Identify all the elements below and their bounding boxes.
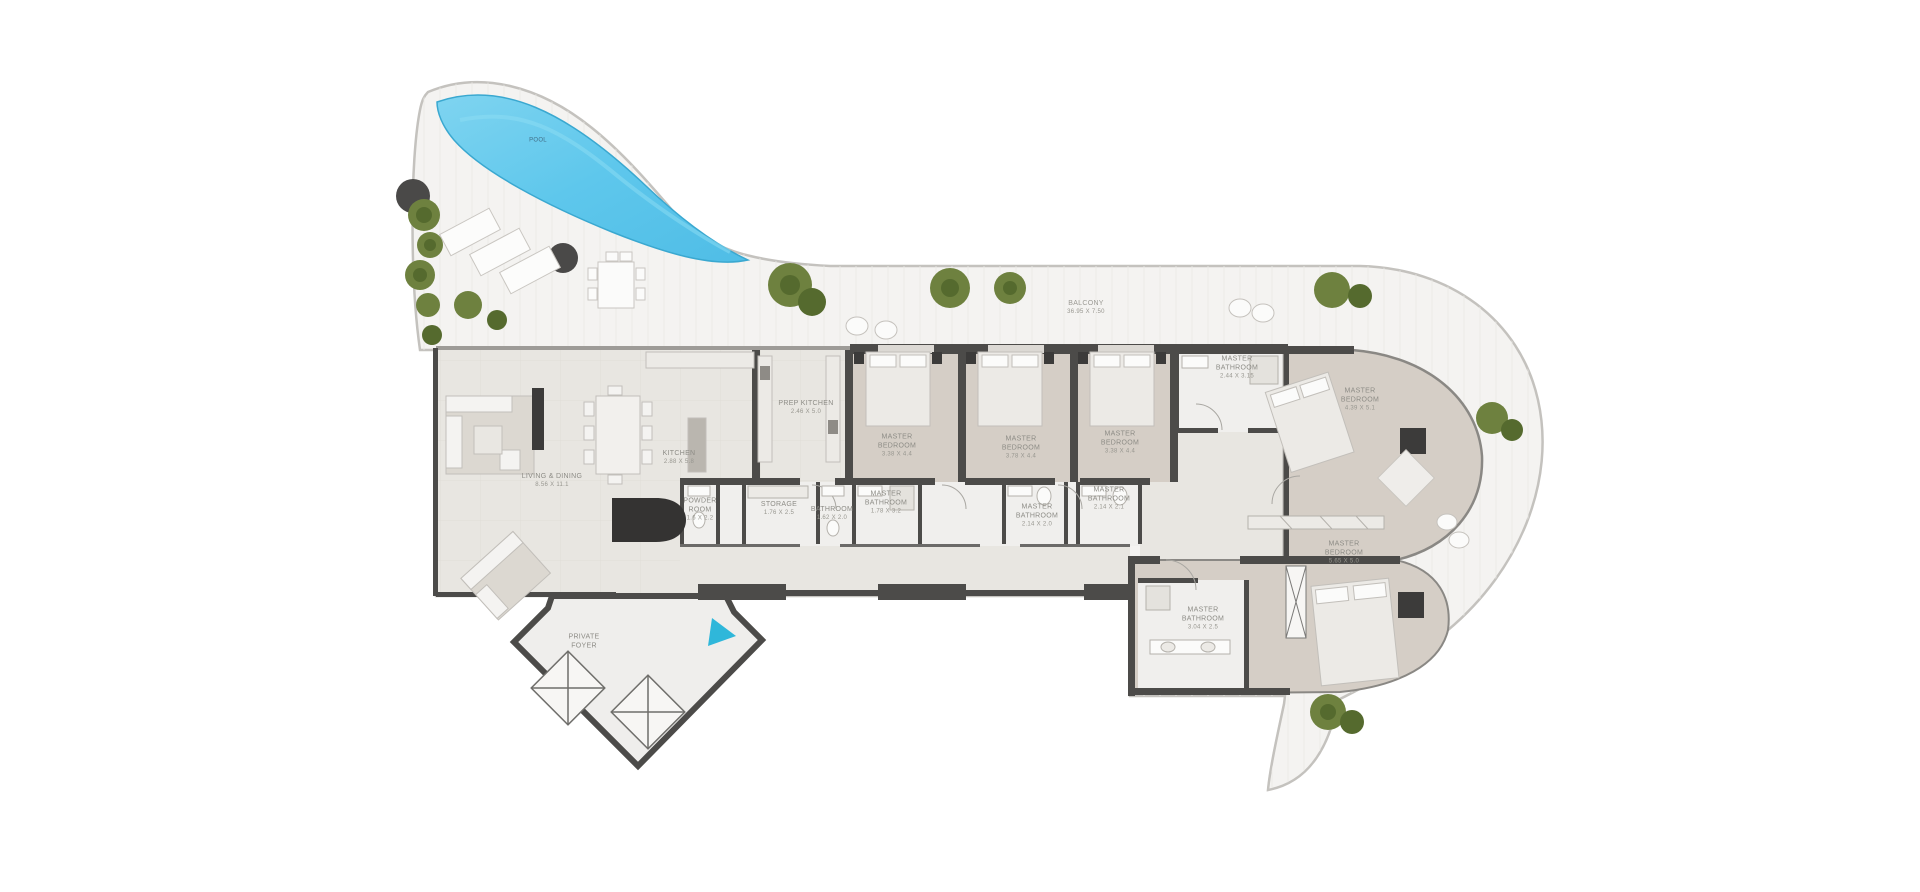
bed-master-2 [966, 352, 1054, 426]
sofa [446, 396, 512, 412]
ottoman [1398, 592, 1424, 618]
coffee-table [474, 426, 502, 454]
prep-counter [826, 356, 840, 462]
bed-master-3 [1078, 352, 1166, 426]
corridor-wardrobe [1248, 516, 1384, 529]
bed-master-1 [854, 352, 942, 426]
armchair [500, 450, 520, 470]
sofa [446, 416, 462, 468]
bed-master-bottom [1311, 578, 1399, 686]
tv-console [532, 388, 544, 450]
dining-table [596, 396, 640, 474]
grand-piano [612, 498, 686, 542]
floor-plan-canvas: LIVING & DINING 8.56 X 11.1 KITCHEN 2.88… [0, 0, 1920, 892]
floor-plan-drawing [0, 0, 1920, 892]
kitchen-island [688, 418, 706, 472]
kitchen-counter [646, 352, 754, 368]
wardrobe-x [1286, 566, 1306, 638]
ottoman [1400, 428, 1426, 454]
